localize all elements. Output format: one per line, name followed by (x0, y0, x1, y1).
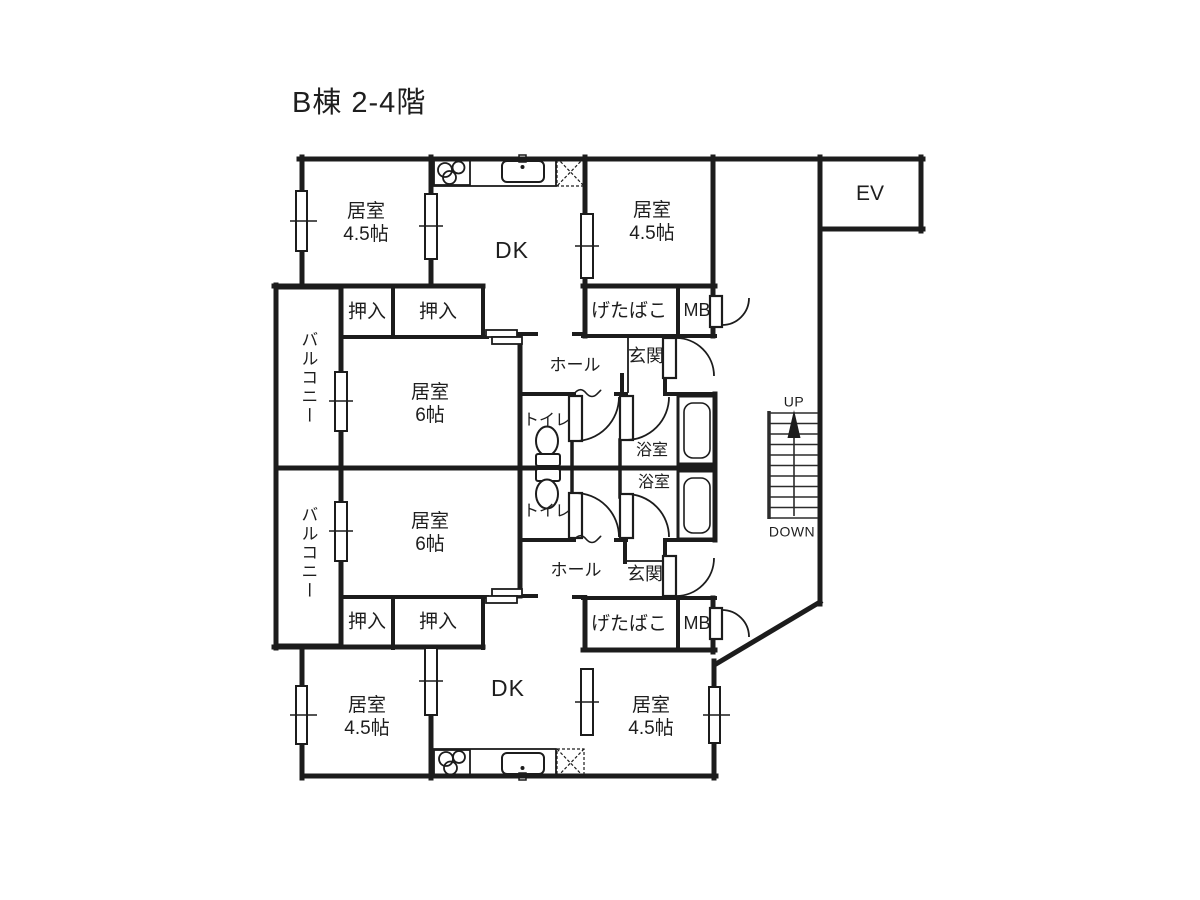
bath-door-top-icon (620, 396, 669, 440)
room-size: 4.5帖 (344, 717, 389, 740)
shoe-box-label: げたばこ (591, 299, 667, 322)
sliding-door-top-icon (486, 330, 522, 344)
curtain-opening-bottom-icon (574, 536, 601, 543)
entrance-label-bottom: 玄関 (627, 564, 663, 586)
room-name: 居室 (629, 199, 674, 222)
entrance-door-bottom-icon (663, 556, 714, 596)
floor-plan-drawing (0, 0, 1200, 900)
meter-box-door-bottom-icon (710, 608, 749, 639)
closet-label: 押入 (419, 610, 457, 633)
room-name: 居室 (411, 510, 449, 533)
bathtub-bottom-icon (678, 471, 716, 539)
elevator-label: EV (856, 181, 884, 207)
floor-plan: B棟 2-4階 居室 4.5帖 DK 居室 4.5帖 EV 押入 押入 げたばこ… (0, 0, 1200, 900)
page-title: B棟 2-4階 (292, 86, 426, 121)
toilet-label-bottom: トイレ (523, 502, 571, 522)
stairs-up-label: UP (784, 393, 804, 410)
window-icon (419, 194, 443, 259)
bathtub-top-icon (678, 396, 716, 464)
room-label-dk-bottom: DK (491, 674, 525, 702)
room-name: 居室 (343, 200, 388, 223)
closet-label: 押入 (419, 300, 457, 323)
room-label-top-left: 居室 4.5帖 (343, 200, 388, 246)
balcony-label-bottom: バルコニー (297, 506, 318, 601)
bathroom-label-top: 浴室 (636, 441, 668, 461)
window-icon (329, 372, 353, 431)
room-label-6mat-top: 居室 6帖 (411, 381, 449, 427)
entrance-label-top: 玄関 (628, 346, 664, 368)
closet-label: 押入 (348, 610, 386, 633)
meter-box-door-top-icon (710, 296, 749, 327)
shaft-hatch-icon (557, 158, 584, 186)
window-icon (290, 191, 317, 251)
staircase (769, 410, 818, 519)
room-name: 居室 (628, 694, 673, 717)
hall-label-top: ホール (550, 356, 601, 377)
window-icon (419, 648, 443, 715)
meter-box-label: MB (684, 300, 711, 322)
room-size: 6帖 (411, 404, 449, 427)
room-label-top-right: 居室 4.5帖 (629, 199, 674, 245)
stove-icon (434, 750, 470, 775)
sliding-door-bottom-icon (486, 589, 522, 603)
room-label-6mat-bottom: 居室 6帖 (411, 510, 449, 556)
stove-icon (434, 160, 470, 185)
window-icon (329, 502, 353, 561)
room-size: 4.5帖 (628, 717, 673, 740)
room-size: 4.5帖 (629, 222, 674, 245)
hall-label-bottom: ホール (551, 561, 602, 582)
balcony-label-top: バルコニー (297, 331, 318, 426)
room-size: 6帖 (411, 533, 449, 556)
room-label-bottom-left: 居室 4.5帖 (344, 694, 389, 740)
closet-label: 押入 (348, 300, 386, 323)
window-icon (575, 214, 599, 278)
room-name: 居室 (411, 381, 449, 404)
room-label-dk-top: DK (495, 236, 529, 264)
toilet-label-top: トイレ (523, 411, 571, 431)
toilet-top-icon (536, 427, 560, 467)
room-name: 居室 (344, 694, 389, 717)
room-size: 4.5帖 (343, 223, 388, 246)
toilet-door-bottom-icon (569, 493, 619, 538)
bathroom-label-bottom: 浴室 (638, 473, 670, 493)
window-icon (290, 686, 317, 744)
window-icon (575, 669, 599, 735)
shoe-box-label: げたばこ (591, 612, 667, 635)
toilet-door-top-icon (569, 396, 619, 441)
meter-box-label: MB (684, 613, 711, 635)
bath-door-bottom-icon (620, 494, 669, 538)
stairs-down-label: DOWN (769, 523, 815, 540)
shaft-hatch-icon (557, 749, 584, 777)
window-icon (703, 687, 730, 743)
room-label-bottom-right: 居室 4.5帖 (628, 694, 673, 740)
entrance-door-top-icon (663, 338, 714, 378)
stair-direction-arrow-icon (788, 410, 801, 516)
